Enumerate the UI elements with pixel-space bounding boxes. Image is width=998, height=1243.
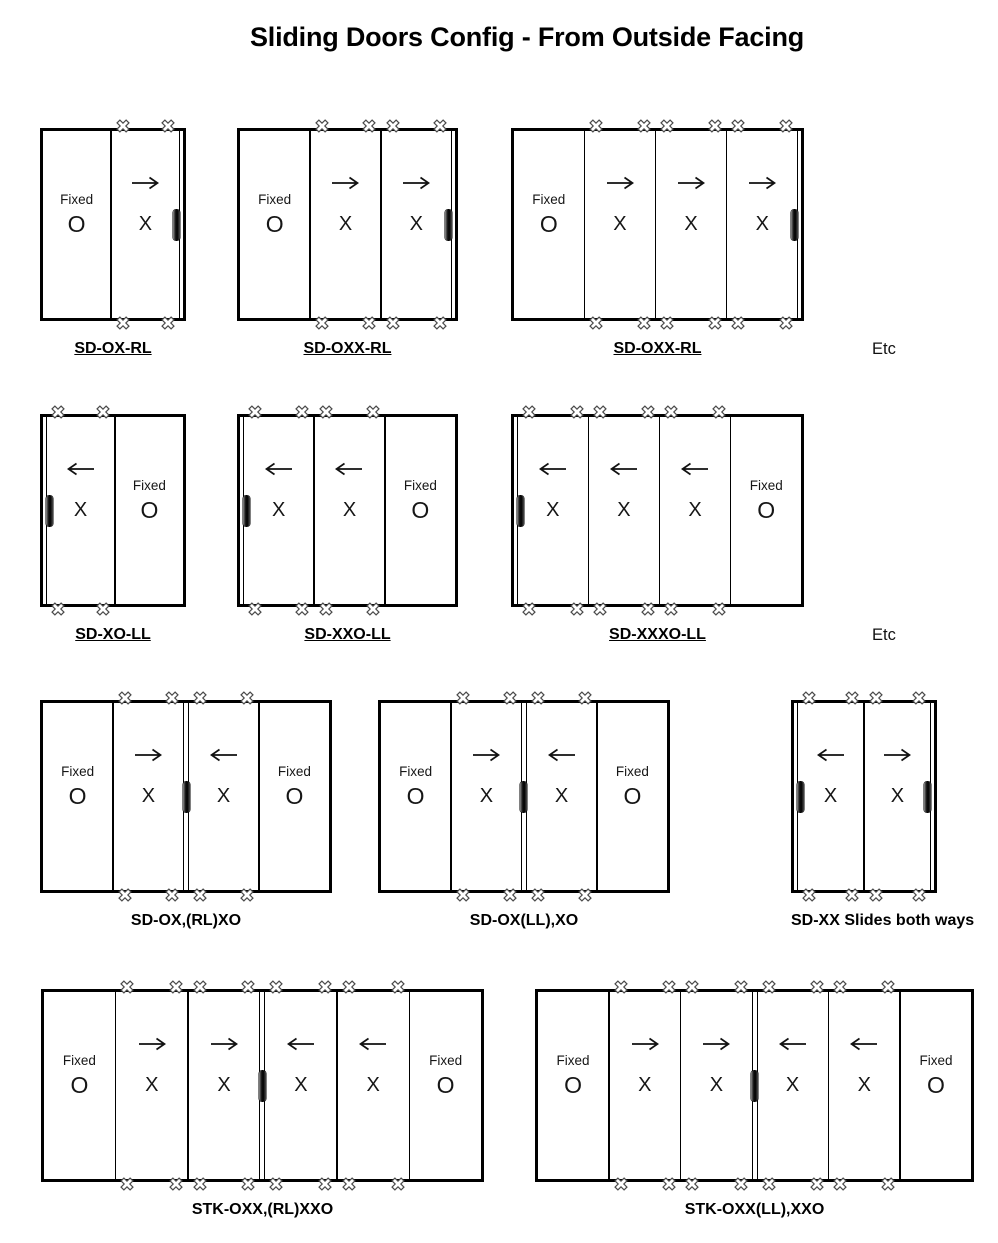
panel-letter: X — [244, 499, 313, 522]
sliding-panel: X — [265, 992, 336, 1179]
cross-mark-icon — [881, 1177, 895, 1191]
fixed-panel: FixedO — [514, 131, 584, 318]
diagram-label: SD-OX(LL),XO — [378, 912, 670, 930]
cross-mark-icon — [845, 888, 859, 902]
arrow-right-icon — [331, 175, 359, 191]
sliding-panel: X — [338, 992, 409, 1179]
sliding-panel: X — [829, 992, 899, 1179]
cross-mark-icon — [96, 602, 110, 616]
sliding-panel: X — [865, 703, 930, 890]
cross-mark-icon — [51, 602, 65, 616]
cross-mark-icon — [342, 980, 356, 994]
diagram-label: SD-XXO-LL — [237, 626, 458, 644]
panel-letter: O — [240, 210, 309, 237]
cross-mark-icon — [116, 316, 130, 330]
cross-mark-icon — [708, 316, 722, 330]
panel-letter: X — [382, 213, 451, 236]
sliding-panel: X — [311, 131, 380, 318]
diagram-sd-oxx-rl: FixedOXX SD-OXX-RL — [237, 128, 458, 358]
cross-mark-icon — [315, 119, 329, 133]
door-frame: FixedOXXX — [511, 128, 804, 321]
door-frame: XFixedO — [40, 414, 186, 607]
cross-mark-icon — [522, 602, 536, 616]
fixed-label: Fixed — [410, 1053, 481, 1068]
panel-letter: O — [386, 496, 455, 523]
cross-mark-icon — [833, 1177, 847, 1191]
panel-letter: X — [656, 213, 726, 236]
cross-mark-icon — [712, 405, 726, 419]
cross-mark-icon — [779, 119, 793, 133]
arrow-right-icon — [748, 175, 776, 191]
cross-mark-icon — [362, 119, 376, 133]
panel-letter: X — [589, 499, 659, 522]
cross-mark-icon — [637, 119, 651, 133]
cross-mark-icon — [193, 980, 207, 994]
door-handle — [46, 495, 53, 526]
cross-mark-icon — [734, 980, 748, 994]
cross-mark-icon — [116, 119, 130, 133]
cross-mark-icon — [578, 888, 592, 902]
cross-mark-icon — [51, 405, 65, 419]
cross-mark-icon — [869, 888, 883, 902]
arrow-left-icon — [681, 461, 709, 477]
cross-mark-icon — [664, 405, 678, 419]
diagram-label: SD-XX Slides both ways — [791, 912, 937, 930]
sliding-panel: X — [189, 992, 260, 1179]
cross-mark-icon — [614, 1177, 628, 1191]
door-handle — [243, 495, 250, 526]
cross-mark-icon — [802, 888, 816, 902]
panel-letter: X — [116, 1074, 187, 1097]
diagram-label: SD-OXX-RL — [511, 340, 804, 358]
fixed-panel: FixedO — [43, 703, 112, 890]
sliding-panel: X — [660, 417, 730, 604]
arrow-right-icon — [134, 747, 162, 763]
door-frame: XXFixedO — [237, 414, 458, 607]
cross-mark-icon — [342, 1177, 356, 1191]
fixed-label: Fixed — [44, 1053, 115, 1068]
fixed-panel: FixedO — [598, 703, 667, 890]
cross-mark-icon — [248, 405, 262, 419]
diagram-sd-ox-ll-xo: FixedOXXFixedO SD-OX(LL),XO — [378, 700, 670, 930]
arrow-left-icon — [610, 461, 638, 477]
panel-letter: O — [116, 496, 183, 523]
arrow-left-icon — [539, 461, 567, 477]
cross-mark-icon — [522, 405, 536, 419]
cross-mark-icon — [120, 980, 134, 994]
cross-mark-icon — [165, 888, 179, 902]
fixed-label: Fixed — [901, 1053, 971, 1068]
panel-letter: X — [265, 1074, 336, 1097]
arrow-left-icon — [779, 1036, 807, 1052]
cross-mark-icon — [664, 602, 678, 616]
sliding-panel: X — [758, 992, 828, 1179]
fixed-panel: FixedO — [381, 703, 450, 890]
etc-label: Etc — [872, 340, 896, 359]
cross-mark-icon — [120, 1177, 134, 1191]
door-frame: XXXFixedO — [511, 414, 804, 607]
door-frame: XX — [791, 700, 937, 893]
sliding-panel: X — [47, 417, 114, 604]
arrow-right-icon — [402, 175, 430, 191]
sliding-panel: X — [518, 417, 588, 604]
cross-mark-icon — [391, 1177, 405, 1191]
cross-mark-icon — [193, 691, 207, 705]
cross-mark-icon — [433, 119, 447, 133]
arrow-left-icon — [287, 1036, 315, 1052]
cross-mark-icon — [295, 405, 309, 419]
panel-letter: X — [865, 785, 930, 808]
panel-letter: X — [338, 1074, 409, 1097]
cross-mark-icon — [295, 602, 309, 616]
fixed-label: Fixed — [538, 1053, 608, 1068]
sliding-panel: X — [656, 131, 726, 318]
sliding-panel: X — [244, 417, 313, 604]
diagram-sd-xxo-ll: XXFixedO SD-XXO-LL — [237, 414, 458, 644]
door-handle — [791, 209, 798, 240]
panel-letter: O — [514, 210, 584, 237]
door-handle — [517, 495, 524, 526]
fixed-label: Fixed — [260, 764, 329, 779]
cross-mark-icon — [731, 119, 745, 133]
panel-letter: X — [47, 499, 114, 522]
cross-mark-icon — [165, 691, 179, 705]
sliding-panel: X — [681, 992, 751, 1179]
cross-mark-icon — [362, 316, 376, 330]
cross-mark-icon — [614, 980, 628, 994]
diagram-label: SD-XXXO-LL — [511, 626, 804, 644]
cross-mark-icon — [241, 1177, 255, 1191]
cross-mark-icon — [578, 691, 592, 705]
arrow-left-icon — [850, 1036, 878, 1052]
cross-mark-icon — [734, 1177, 748, 1191]
diagram-label: SD-OX,(RL)XO — [40, 912, 332, 930]
door-handle — [797, 781, 804, 812]
diagram-label: SD-XO-LL — [40, 626, 186, 644]
cross-mark-icon — [845, 691, 859, 705]
cross-mark-icon — [570, 405, 584, 419]
cross-mark-icon — [193, 1177, 207, 1191]
panel-letter: O — [260, 782, 329, 809]
cross-mark-icon — [802, 691, 816, 705]
fixed-label: Fixed — [43, 192, 110, 207]
cross-mark-icon — [641, 405, 655, 419]
panel-letter: O — [598, 782, 667, 809]
panel-letter: X — [829, 1074, 899, 1097]
fixed-panel: FixedO — [386, 417, 455, 604]
sliding-panel: X — [610, 992, 680, 1179]
diagram-label: SD-OX-RL — [40, 340, 186, 358]
sliding-panel: X — [527, 703, 596, 890]
diagram-sd-xxxo-ll: XXXFixedO SD-XXXO-LL — [511, 414, 804, 644]
cross-mark-icon — [366, 602, 380, 616]
panel-letter: X — [660, 499, 730, 522]
arrow-right-icon — [702, 1036, 730, 1052]
diagram-sd-oxx-rl-4panel: FixedOXXX SD-OXX-RL — [511, 128, 804, 358]
fixed-label: Fixed — [514, 192, 584, 207]
cross-mark-icon — [881, 980, 895, 994]
cross-mark-icon — [96, 405, 110, 419]
arrow-right-icon — [631, 1036, 659, 1052]
cross-mark-icon — [315, 316, 329, 330]
door-frame: FixedOX — [40, 128, 186, 321]
fixed-label: Fixed — [381, 764, 450, 779]
sliding-panel: X — [589, 417, 659, 604]
cross-mark-icon — [685, 980, 699, 994]
cross-mark-icon — [118, 691, 132, 705]
arrow-left-icon — [817, 747, 845, 763]
cross-mark-icon — [456, 888, 470, 902]
panel-letter: O — [43, 210, 110, 237]
cross-mark-icon — [318, 980, 332, 994]
panel-letter: O — [410, 1071, 481, 1098]
panel-letter: X — [727, 213, 797, 236]
cross-mark-icon — [319, 602, 333, 616]
door-frame: FixedOXXXXFixedO — [535, 989, 974, 1182]
cross-mark-icon — [810, 1177, 824, 1191]
cross-mark-icon — [240, 691, 254, 705]
cross-mark-icon — [366, 405, 380, 419]
panel-letter: X — [681, 1074, 751, 1097]
sliding-panel: X — [116, 992, 187, 1179]
cross-mark-icon — [503, 888, 517, 902]
sliding-panel: X — [798, 703, 863, 890]
fixed-panel: FixedO — [43, 131, 110, 318]
sliding-panel: X — [585, 131, 655, 318]
cross-mark-icon — [912, 691, 926, 705]
cross-mark-icon — [662, 1177, 676, 1191]
panel-letter: O — [731, 496, 801, 523]
cross-mark-icon — [662, 980, 676, 994]
cross-mark-icon — [456, 691, 470, 705]
cross-mark-icon — [762, 980, 776, 994]
panel-letter: X — [527, 785, 596, 808]
diagram-label: SD-OXX-RL — [237, 340, 458, 358]
cross-mark-icon — [193, 888, 207, 902]
panel-letter: X — [189, 785, 258, 808]
sliding-panel: X — [727, 131, 797, 318]
fixed-label: Fixed — [386, 478, 455, 493]
sliding-panel: X — [452, 703, 521, 890]
panel-letter: O — [44, 1071, 115, 1098]
cross-mark-icon — [269, 980, 283, 994]
sliding-doors-config-sheet: Sliding Doors Config - From Outside Faci… — [0, 0, 998, 1243]
cross-mark-icon — [660, 316, 674, 330]
cross-mark-icon — [810, 980, 824, 994]
panel-letter: X — [585, 213, 655, 236]
cross-mark-icon — [712, 602, 726, 616]
fixed-label: Fixed — [43, 764, 112, 779]
arrow-left-icon — [548, 747, 576, 763]
cross-mark-icon — [503, 691, 517, 705]
door-handle — [173, 209, 180, 240]
panel-letter: O — [538, 1071, 608, 1098]
cross-mark-icon — [391, 980, 405, 994]
arrow-left-icon — [265, 461, 293, 477]
diagram-stk-oxx-ll-xxo: FixedOXXXXFixedO STK-OXX(LL),XXO — [535, 989, 974, 1219]
cross-mark-icon — [708, 119, 722, 133]
fixed-panel: FixedO — [240, 131, 309, 318]
sliding-panel: X — [112, 131, 179, 318]
cross-mark-icon — [660, 119, 674, 133]
sliding-panel: X — [382, 131, 451, 318]
panel-letter: X — [798, 785, 863, 808]
door-handle — [520, 781, 527, 812]
cross-mark-icon — [161, 316, 175, 330]
panel-letter: X — [189, 1074, 260, 1097]
door-handle — [751, 1070, 758, 1101]
cross-mark-icon — [241, 980, 255, 994]
etc-label: Etc — [872, 626, 896, 645]
arrow-right-icon — [883, 747, 911, 763]
fixed-label: Fixed — [731, 478, 801, 493]
door-handle — [183, 781, 190, 812]
diagram-label: STK-OXX(LL),XXO — [535, 1201, 974, 1219]
diagram-sd-ox-rl-xo: FixedOXXFixedO SD-OX,(RL)XO — [40, 700, 332, 930]
cross-mark-icon — [386, 316, 400, 330]
cross-mark-icon — [433, 316, 447, 330]
panel-letter: O — [381, 782, 450, 809]
panel-letter: X — [315, 499, 384, 522]
cross-mark-icon — [589, 119, 603, 133]
cross-mark-icon — [762, 1177, 776, 1191]
cross-mark-icon — [637, 316, 651, 330]
panel-letter: X — [452, 785, 521, 808]
door-frame: FixedOXXFixedO — [378, 700, 670, 893]
panel-letter: O — [43, 782, 112, 809]
fixed-panel: FixedO — [116, 417, 183, 604]
fixed-panel: FixedO — [44, 992, 115, 1179]
panel-letter: X — [518, 499, 588, 522]
cross-mark-icon — [641, 602, 655, 616]
page-title: Sliding Doors Config - From Outside Faci… — [0, 22, 998, 53]
cross-mark-icon — [118, 888, 132, 902]
cross-mark-icon — [319, 405, 333, 419]
door-handle — [924, 781, 931, 812]
arrow-right-icon — [606, 175, 634, 191]
cross-mark-icon — [593, 602, 607, 616]
cross-mark-icon — [386, 119, 400, 133]
cross-mark-icon — [593, 405, 607, 419]
cross-mark-icon — [570, 602, 584, 616]
diagram-sd-xx-both-ways: XX SD-XX Slides both ways — [791, 700, 937, 930]
fixed-label: Fixed — [240, 192, 309, 207]
fixed-panel: FixedO — [901, 992, 971, 1179]
arrow-right-icon — [210, 1036, 238, 1052]
sliding-panel: X — [315, 417, 384, 604]
arrow-left-icon — [335, 461, 363, 477]
panel-letter: X — [758, 1074, 828, 1097]
sliding-panel: X — [114, 703, 183, 890]
door-frame: FixedOXXXXFixedO — [41, 989, 484, 1182]
panel-letter: X — [114, 785, 183, 808]
arrow-left-icon — [210, 747, 238, 763]
diagram-sd-xo-ll: XFixedO SD-XO-LL — [40, 414, 186, 644]
cross-mark-icon — [248, 602, 262, 616]
cross-mark-icon — [685, 1177, 699, 1191]
fixed-label: Fixed — [116, 478, 183, 493]
panel-letter: O — [901, 1071, 971, 1098]
door-handle — [445, 209, 452, 240]
diagram-label: STK-OXX,(RL)XXO — [41, 1201, 484, 1219]
cross-mark-icon — [240, 888, 254, 902]
fixed-panel: FixedO — [260, 703, 329, 890]
fixed-label: Fixed — [598, 764, 667, 779]
door-frame: FixedOXXFixedO — [40, 700, 332, 893]
cross-mark-icon — [531, 888, 545, 902]
cross-mark-icon — [589, 316, 603, 330]
diagram-stk-oxx-rl-xxo: FixedOXXXXFixedO STK-OXX,(RL)XXO — [41, 989, 484, 1219]
fixed-panel: FixedO — [410, 992, 481, 1179]
panel-letter: X — [311, 213, 380, 236]
cross-mark-icon — [731, 316, 745, 330]
cross-mark-icon — [269, 1177, 283, 1191]
door-handle — [259, 1070, 266, 1101]
cross-mark-icon — [161, 119, 175, 133]
cross-mark-icon — [531, 691, 545, 705]
cross-mark-icon — [779, 316, 793, 330]
cross-mark-icon — [169, 1177, 183, 1191]
cross-mark-icon — [318, 1177, 332, 1191]
fixed-panel: FixedO — [538, 992, 608, 1179]
sliding-panel: X — [189, 703, 258, 890]
door-frame: FixedOXX — [237, 128, 458, 321]
arrow-left-icon — [359, 1036, 387, 1052]
panel-letter: X — [112, 213, 179, 236]
arrow-left-icon — [67, 461, 95, 477]
cross-mark-icon — [912, 888, 926, 902]
arrow-right-icon — [472, 747, 500, 763]
arrow-right-icon — [677, 175, 705, 191]
panel-letter: X — [610, 1074, 680, 1097]
cross-mark-icon — [833, 980, 847, 994]
arrow-right-icon — [138, 1036, 166, 1052]
diagram-sd-ox-rl: FixedOX SD-OX-RL — [40, 128, 186, 358]
cross-mark-icon — [869, 691, 883, 705]
cross-mark-icon — [169, 980, 183, 994]
fixed-panel: FixedO — [731, 417, 801, 604]
arrow-right-icon — [131, 175, 159, 191]
